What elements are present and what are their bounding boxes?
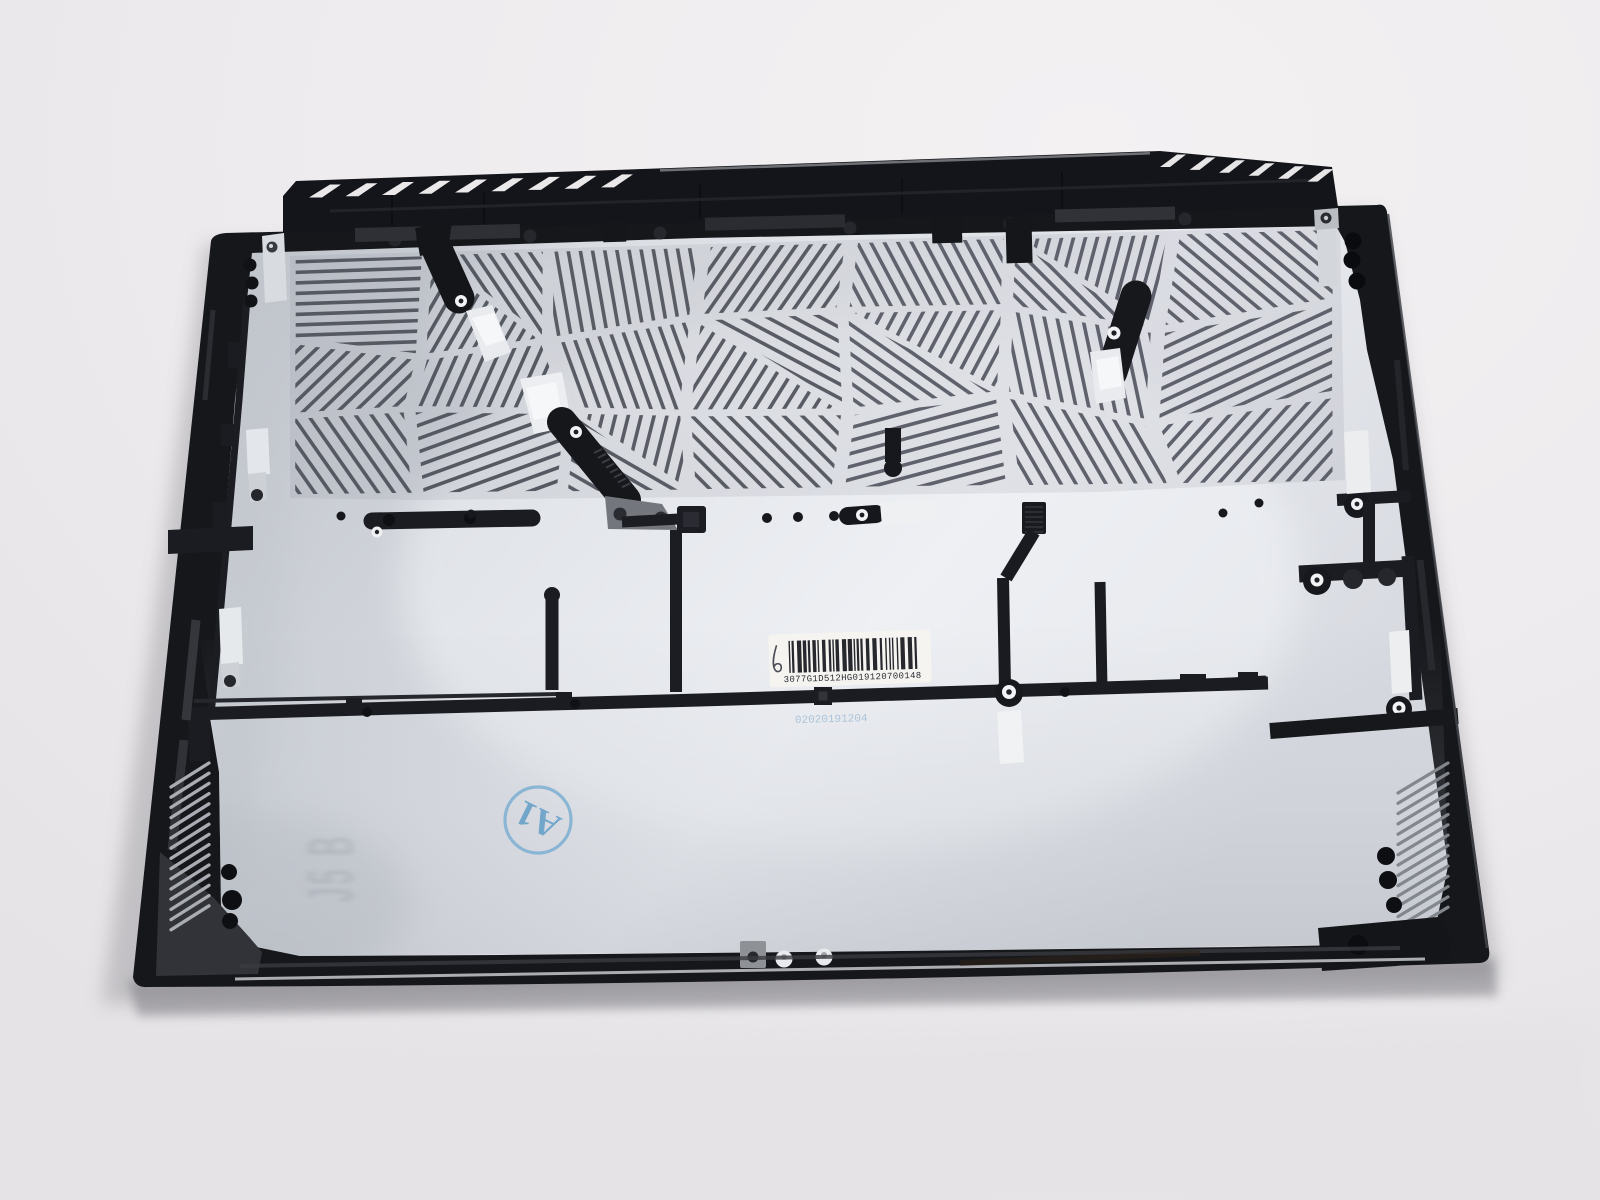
svg-text:02020191204: 02020191204: [795, 713, 868, 727]
svg-text:J5 B: J5 B: [294, 833, 367, 902]
